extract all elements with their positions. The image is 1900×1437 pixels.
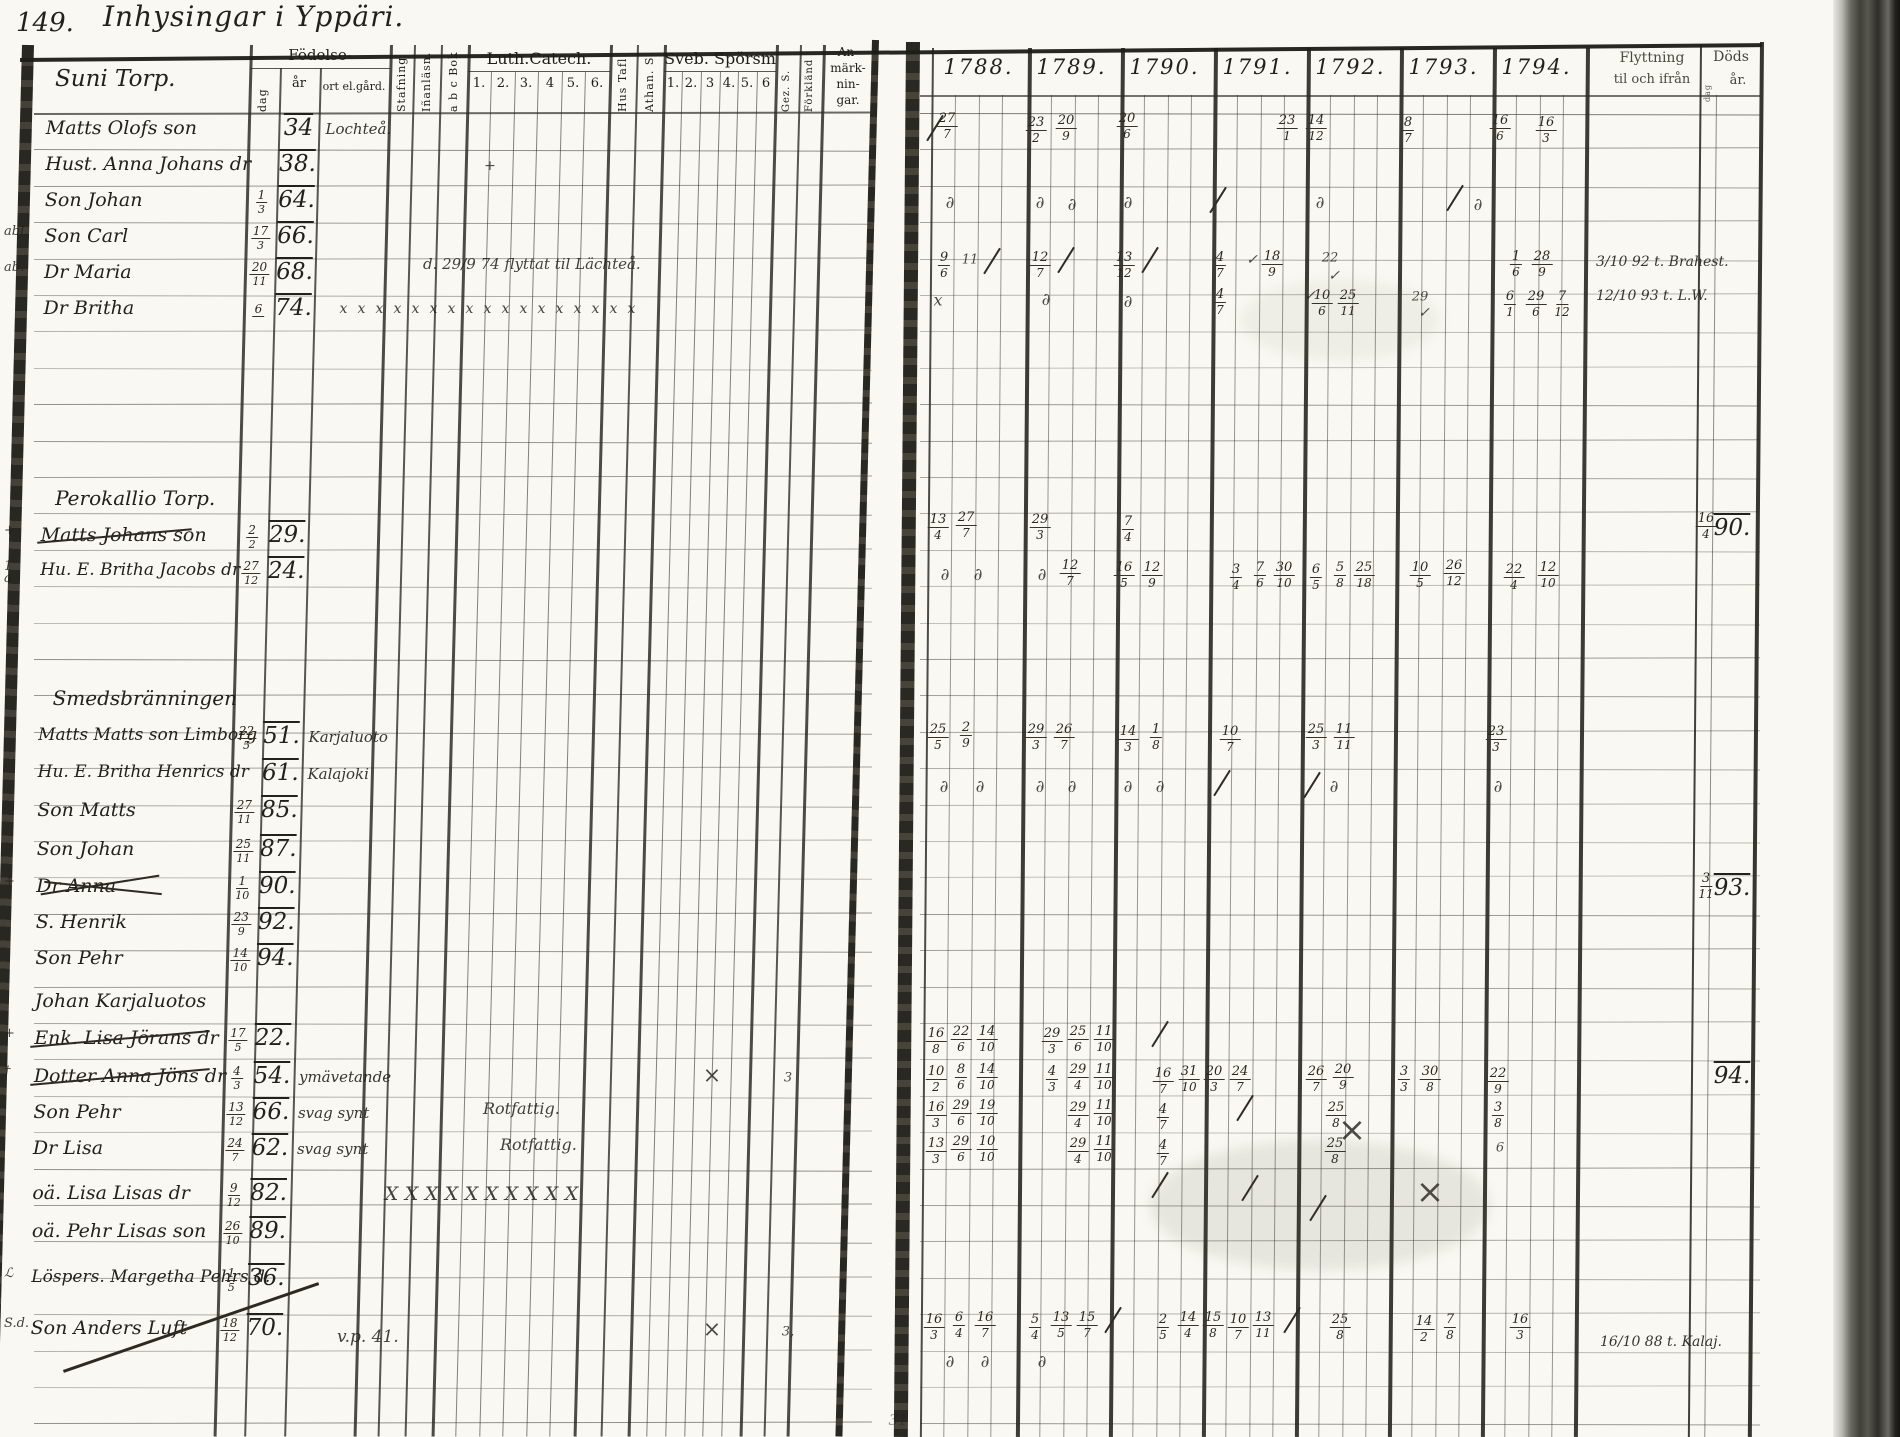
year-header: 1788. — [943, 55, 1013, 79]
exam-date-mark: 2612 — [1444, 559, 1465, 587]
exam-date-mark: 54 — [1029, 1313, 1041, 1341]
person-name: Dr Maria — [44, 261, 132, 283]
header-rule — [920, 95, 1760, 97]
communion-flourish: ∂ — [1068, 777, 1077, 797]
book-edge-scan-band — [1833, 0, 1900, 1437]
birth-year: 34 — [284, 115, 313, 141]
row-annotation: d. 29/9 74 flyttat til Lächteå. — [423, 255, 641, 273]
person-name: Son Pehr — [35, 947, 122, 969]
exam-date-mark: 296 — [1526, 290, 1547, 318]
exam-date-mark: 107 — [1220, 725, 1241, 753]
exam-date-mark: 294 — [1068, 1063, 1089, 1091]
communion-flourish: ∂ — [946, 193, 955, 213]
birth-year: 68. — [276, 259, 313, 285]
page-title: Inhysingar i Yppäri. — [103, 0, 404, 33]
person-name: Dr Britha — [44, 297, 135, 319]
person-name: S. Henrik — [36, 911, 127, 933]
exam-date-mark: 58 — [1334, 561, 1346, 589]
column-rule — [990, 95, 1003, 1437]
header-ort-label: ort el.gård. — [323, 80, 386, 93]
slash-mark — [1213, 770, 1231, 796]
person-name: Son Johan — [45, 189, 143, 211]
catechism-x-mark: x — [555, 301, 563, 317]
row-rule — [34, 1023, 872, 1026]
year-header: 1792. — [1315, 55, 1385, 79]
communion-flourish: ∂ — [1038, 1352, 1047, 1372]
birth-year: 94. — [257, 945, 294, 971]
year-header: 1791. — [1222, 55, 1292, 79]
header-luth-num: 4 — [546, 76, 554, 91]
exam-date-mark: 158 — [1203, 1311, 1224, 1339]
death-year: 93. — [1714, 875, 1751, 901]
catechism-x-mark: X — [565, 1183, 579, 1205]
person-name: Son Matts — [37, 799, 136, 821]
person-name: Hust. Anna Johans dr — [45, 153, 251, 175]
row-rule — [920, 404, 1760, 407]
row-rule — [34, 912, 872, 915]
birth-year: 29. — [269, 522, 306, 548]
catechism-x-mark: x — [483, 301, 491, 317]
communion-flourish: ∂ — [1330, 777, 1339, 797]
exam-date-mark: 86 — [955, 1063, 967, 1091]
birth-day-fraction: 1410 — [231, 947, 250, 973]
exam-date-mark: 294 — [1068, 1101, 1089, 1129]
communion-flourish: ∂ — [976, 777, 985, 797]
communion-flourish: ∂ — [1038, 565, 1047, 585]
small-mark: × — [703, 1318, 721, 1343]
scan-smudge — [1240, 280, 1440, 360]
column-rule — [764, 45, 802, 1437]
row-rule — [920, 1278, 1760, 1281]
exam-date-mark: 232 — [1026, 116, 1047, 144]
birth-year: 87. — [260, 836, 297, 862]
header-death-label: Döds — [1713, 49, 1749, 65]
exam-date-mark: 1111 — [1334, 723, 1355, 751]
row-rule — [34, 112, 872, 115]
communion-flourish: ∂ — [1036, 777, 1045, 797]
row-annotation: Rotfattig. — [483, 1099, 560, 1118]
check-mark: ✓ — [1246, 252, 1258, 268]
birth-place-or-status: Kalajoki — [307, 765, 368, 783]
exam-date-mark: 253 — [1306, 723, 1327, 751]
catechism-x-mark: x — [501, 301, 509, 317]
birth-year: 64. — [278, 187, 315, 213]
row-rule — [920, 914, 1760, 917]
catechism-x-mark: x — [411, 301, 419, 317]
column-rule — [0, 45, 34, 1437]
row-rule — [34, 840, 872, 843]
exam-date-mark: 2518 — [1354, 561, 1375, 589]
birth-day-fraction: 225 — [237, 725, 256, 751]
header-sveb-num: 4. — [723, 76, 735, 91]
exam-date-mark: 43 — [1046, 1065, 1058, 1093]
catechism-x-mark: x — [609, 301, 617, 317]
exam-date-mark: 209 — [1056, 114, 1077, 142]
row-annotation: Rotfattig. — [500, 1135, 577, 1154]
row-rule — [34, 441, 872, 444]
person-name: Son Pehr — [33, 1101, 120, 1123]
header-remarks-label: gar. — [836, 93, 859, 107]
exam-date-mark: 163 — [924, 1313, 945, 1341]
exam-date-mark: 267 — [1306, 1065, 1327, 1093]
birth-day-fraction: 22 — [246, 524, 258, 550]
header-sveb-num: 1. — [667, 76, 679, 91]
column-rule — [1156, 95, 1169, 1437]
header-vertical-label: Förkländ — [804, 48, 815, 112]
exam-date-mark: 258 — [1330, 1313, 1351, 1341]
small-mark: 3 — [784, 1071, 792, 1086]
communion-flourish: ∂ — [940, 777, 949, 797]
catechism-x-mark: X — [385, 1183, 399, 1205]
exam-date-mark: 167 — [1153, 1067, 1174, 1095]
exam-date-mark: 224 — [1504, 563, 1525, 591]
communion-flourish: ∂ — [1316, 193, 1325, 213]
birth-place-or-status: svag synt — [297, 1140, 368, 1158]
column-rule — [967, 95, 980, 1437]
birth-day-fraction: 2011 — [250, 261, 269, 287]
exam-date-mark: 78 — [1444, 1313, 1456, 1341]
small-mark: × — [703, 1064, 721, 1089]
exam-date-mark: 256 — [1068, 1025, 1089, 1053]
header-dag-label: dag — [256, 72, 269, 112]
communion-flourish: ∂ — [1036, 193, 1045, 213]
birth-place-or-status: ymävetande — [299, 1068, 391, 1086]
catechism-x-mark: X — [545, 1183, 559, 1205]
catechism-x-mark: X — [445, 1183, 459, 1205]
birth-day-fraction: 43 — [231, 1065, 243, 1091]
exam-date-mark: 203 — [1204, 1065, 1225, 1093]
person-name: Hu. E. Britha Jacobs dr — [40, 560, 240, 580]
scan-smudge — [1150, 1140, 1490, 1270]
birth-year: 70. — [247, 1315, 284, 1341]
birth-day-fraction: 2610 — [223, 1220, 242, 1246]
year-header: 1789. — [1036, 55, 1106, 79]
birth-day-fraction: 2712 — [241, 560, 260, 586]
exam-date-mark: 167 — [975, 1311, 996, 1339]
exam-date-mark: 163 — [1510, 1313, 1531, 1341]
row-rule — [34, 805, 872, 808]
exam-date-mark: 712 — [1554, 290, 1569, 318]
person-name: oä. Lisa Lisas dr — [32, 1182, 189, 1204]
exam-date-mark: 233 — [1486, 725, 1507, 753]
margin-note: 1 a — [4, 561, 12, 586]
column-rule — [502, 72, 539, 1437]
birth-year: 38. — [279, 151, 316, 177]
row-rule — [920, 477, 1760, 480]
row-rule — [920, 439, 1760, 442]
page-number: 149. — [16, 8, 74, 38]
exam-date-mark: 163 — [1536, 116, 1557, 144]
exam-date-mark: 127 — [1060, 559, 1081, 587]
exam-date-mark: 129 — [1142, 561, 1163, 589]
exam-date-mark: 277 — [956, 511, 977, 539]
exam-date-mark: 308 — [1420, 1065, 1441, 1093]
row-rule — [34, 222, 872, 225]
header-vertical-label: Stafning — [395, 48, 408, 112]
exam-date-mark: 293 — [1042, 1027, 1063, 1055]
row-rule — [920, 148, 1760, 151]
exam-date-mark: 1110 — [1094, 1063, 1115, 1091]
death-year: 90. — [1714, 515, 1751, 541]
exam-date-mark: 105 — [1410, 561, 1431, 589]
exam-date-mark: 1410 — [977, 1025, 998, 1053]
exam-date-mark: 1210 — [1538, 561, 1559, 589]
row-rule — [920, 948, 1760, 951]
exam-date-mark: 47 — [1157, 1139, 1169, 1167]
row-rule — [34, 149, 872, 152]
header-remarks-label: märk- — [830, 61, 865, 75]
exam-date-mark: 64 — [953, 1311, 965, 1339]
column-rule — [1574, 48, 1590, 1437]
communion-flourish: ∂ — [946, 1352, 955, 1372]
small-mark: 11 — [962, 253, 979, 268]
exam-date-mark: 33 — [1398, 1065, 1410, 1093]
exam-date-mark: 143 — [1118, 725, 1139, 753]
exam-date-mark: 1010 — [977, 1135, 998, 1163]
moving-note: 12/10 93 t. L.W. — [1596, 288, 1708, 304]
person-name: Son Carl — [44, 225, 128, 247]
header-rule — [468, 71, 610, 72]
column-rule — [702, 72, 739, 1437]
exam-date-mark: 134 — [928, 513, 949, 541]
catechism-x-mark: x — [465, 301, 473, 317]
header-death-dag-label: dag — [1703, 68, 1712, 102]
birth-day-fraction: 173 — [251, 225, 270, 251]
column-rule — [1086, 95, 1099, 1437]
exam-date-mark: 1910 — [977, 1099, 998, 1127]
exam-date-mark: 1110 — [1094, 1025, 1115, 1053]
birth-day-fraction: 13 — [256, 189, 268, 215]
person-name: Son Johan — [37, 838, 135, 860]
exam-date-mark: 296 — [951, 1135, 972, 1163]
row-rule — [920, 1094, 1760, 1097]
exam-date-mark: 144 — [1178, 1311, 1199, 1339]
birth-day-fraction: 1812 — [220, 1317, 239, 1343]
column-rule — [684, 72, 721, 1437]
birth-year: 82. — [250, 1180, 287, 1206]
moving-note: 3/10 92 t. Brahest. — [1596, 254, 1729, 270]
row-rule — [34, 950, 872, 953]
exam-date-mark: 3010 — [1274, 561, 1295, 589]
communion-flourish: ∂ — [1068, 195, 1077, 215]
birth-day-fraction: 15 — [225, 1267, 237, 1293]
header-death-year-label: år. — [1730, 73, 1747, 88]
birth-day-fraction: 1312 — [226, 1101, 245, 1127]
exam-date-mark: 65 — [1310, 563, 1322, 591]
row-rule — [34, 1349, 872, 1352]
column-rule — [628, 45, 667, 1437]
margin-note: † — [4, 1066, 11, 1078]
row-rule — [34, 621, 872, 624]
exam-date-mark: 255 — [928, 723, 949, 751]
header-sveb-num: 2. — [685, 76, 697, 91]
exam-date-mark: 102 — [926, 1065, 947, 1093]
exam-date-mark: 1410 — [977, 1063, 998, 1091]
row-rule — [34, 1131, 872, 1134]
exam-date-mark: 87 — [1402, 116, 1414, 144]
year-header: 1790. — [1129, 55, 1199, 79]
birth-year: 66. — [253, 1099, 290, 1125]
exam-date-mark: 311 — [1698, 872, 1713, 900]
header-sveb-num: 5. — [741, 76, 753, 91]
catechism-x-mark: X — [525, 1183, 539, 1205]
catechism-x-mark: x — [591, 301, 599, 317]
row-rule — [34, 1422, 872, 1425]
birth-year: 24. — [268, 558, 305, 584]
header-moving-label-2: til och ifrån — [1614, 72, 1691, 87]
small-mark: 31 — [888, 1411, 907, 1429]
exam-date-mark: 277 — [937, 112, 958, 140]
row-rule — [920, 1021, 1760, 1024]
catechism-x-mark: X — [485, 1183, 499, 1205]
exam-date-mark: 34 — [1230, 563, 1242, 591]
communion-flourish: ∂ — [1124, 777, 1133, 797]
margin-note: ab. — [4, 262, 24, 274]
header-luth-num: 2. — [497, 76, 509, 91]
birth-place-or-status: Lochteå. — [326, 120, 392, 138]
small-mark: 3, — [782, 1325, 794, 1340]
margin-note: abl. — [4, 226, 28, 238]
birth-year: 92. — [258, 909, 295, 935]
row-rule — [920, 220, 1760, 223]
person-name: Matts Matts son Limborg — [38, 725, 257, 745]
header-ar-label: år — [292, 76, 306, 91]
small-mark: + — [484, 158, 496, 174]
exam-date-mark: 127 — [1030, 251, 1051, 279]
year-header: 1794. — [1501, 55, 1571, 79]
margin-note: + — [4, 1028, 15, 1040]
small-mark: 6 — [1496, 1141, 1504, 1156]
row-rule — [34, 330, 872, 333]
margin-note: ℒ — [4, 1268, 13, 1280]
person-name: Matts Olofs son — [46, 117, 197, 139]
row-rule — [920, 841, 1760, 844]
exam-date-mark: 47 — [1157, 1103, 1169, 1131]
column-rule — [432, 45, 471, 1437]
exam-date-mark: 157 — [1077, 1311, 1098, 1339]
row-rule — [920, 803, 1760, 806]
exam-date-mark: 165 — [1114, 561, 1135, 589]
person-name: Hu. E. Britha Henrics dr — [38, 762, 249, 782]
margin-note: S.d. — [4, 1318, 29, 1330]
header-vertical-label: Iñanläsn. — [420, 48, 433, 112]
exam-date-mark: 296 — [951, 1099, 972, 1127]
exam-date-mark: 76 — [1254, 561, 1266, 589]
exam-date-mark: 163 — [926, 1101, 947, 1129]
exam-date-mark: 47 — [1214, 288, 1226, 316]
slash-mark — [1446, 185, 1464, 211]
communion-flourish: ∂ — [941, 565, 950, 585]
row-rule — [34, 548, 872, 551]
catechism-x-mark: x — [429, 301, 437, 317]
birth-place-or-status: svag synt — [298, 1104, 369, 1122]
header-rule — [250, 68, 390, 69]
exam-date-mark: 96 — [938, 251, 950, 279]
catechism-x-mark: x — [375, 301, 383, 317]
communion-flourish: ∂ — [974, 565, 983, 585]
catechism-x-mark: x — [627, 301, 635, 317]
birth-day-fraction: 239 — [232, 911, 251, 937]
exam-date-mark: 47 — [1214, 251, 1226, 279]
catechism-x-mark: x — [537, 301, 545, 317]
exam-date-mark: 1312 — [1114, 251, 1135, 279]
group-title-suni-torp: Suni Torp. — [55, 66, 175, 92]
exam-date-mark: 38 — [1492, 1101, 1504, 1129]
exam-date-mark: 247 — [1230, 1065, 1251, 1093]
scanned-church-record-spread: 149. Inhysingar i Yppäri. Suni Torp. Föd… — [0, 0, 1900, 1437]
catechism-x-mark: X — [405, 1183, 419, 1205]
person-name: Dr Lisa — [33, 1137, 103, 1159]
header-remarks-label: An- — [838, 45, 858, 59]
row-rule — [34, 1096, 872, 1099]
row-annotation: v.p. 41. — [337, 1327, 399, 1347]
exam-date-mark: 209 — [1333, 1063, 1354, 1091]
birth-day-fraction: 247 — [225, 1137, 244, 1163]
column-rule — [740, 45, 779, 1437]
header-sveb-num: 6 — [762, 76, 770, 91]
small-mark: x — [933, 291, 942, 310]
exam-date-mark: 289 — [1532, 250, 1553, 278]
row-rule — [34, 1058, 872, 1061]
row-rule — [34, 403, 872, 406]
row-rule — [920, 550, 1760, 553]
column-rule — [1063, 95, 1076, 1437]
communion-flourish: ∂ — [1494, 777, 1503, 797]
header-vertical-label: a b c Bok — [447, 48, 460, 112]
slash-mark — [1303, 772, 1321, 798]
exam-date-mark: 1412 — [1306, 114, 1327, 142]
group-heading: Perokallio Torp. — [55, 486, 215, 510]
row-rule — [34, 368, 872, 371]
catechism-x-mark: x — [393, 301, 401, 317]
header-luth-num: 3. — [520, 76, 532, 91]
header-moving-label-1: Flyttning — [1620, 50, 1685, 66]
column-rule — [894, 42, 920, 1437]
header-rule — [664, 71, 776, 72]
column-rule — [721, 72, 758, 1437]
birth-place-or-status: Karjaluoto — [309, 728, 388, 746]
birth-day-fraction: 912 — [227, 1182, 241, 1208]
column-rule — [455, 72, 492, 1437]
exam-date-mark: 133 — [926, 1137, 947, 1165]
header-vertical-label: Hus Tafl. — [616, 48, 629, 112]
header-sveb-num: 3 — [706, 76, 714, 91]
birth-day-fraction: 110 — [235, 875, 249, 901]
birth-year: 62. — [252, 1135, 289, 1161]
birth-year: 89. — [249, 1218, 286, 1244]
birth-year: 74. — [275, 295, 312, 321]
birth-year: 61. — [262, 760, 299, 786]
margin-note: + — [4, 876, 15, 888]
column-rule — [665, 72, 702, 1437]
exam-date-mark: 226 — [951, 1025, 972, 1053]
exam-date-mark: 25 — [1157, 1313, 1169, 1341]
communion-flourish: ∂ — [1124, 292, 1133, 312]
exam-date-mark: 74 — [1122, 515, 1134, 543]
header-luth-catech-label: Luth.Catech. — [487, 49, 592, 68]
exam-date-mark: 142 — [1414, 1315, 1435, 1343]
exam-date-mark: 231 — [1277, 114, 1298, 142]
birth-year: 51. — [263, 723, 300, 749]
catechism-x-mark: x — [447, 301, 455, 317]
small-mark: 22 — [1322, 251, 1339, 266]
column-rule — [835, 40, 879, 1437]
person-name: oä. Pehr Lisas son — [32, 1220, 206, 1242]
column-rule — [944, 95, 957, 1437]
row-rule — [34, 184, 872, 187]
exam-date-mark: 1110 — [1094, 1099, 1115, 1127]
row-rule — [34, 1387, 872, 1390]
